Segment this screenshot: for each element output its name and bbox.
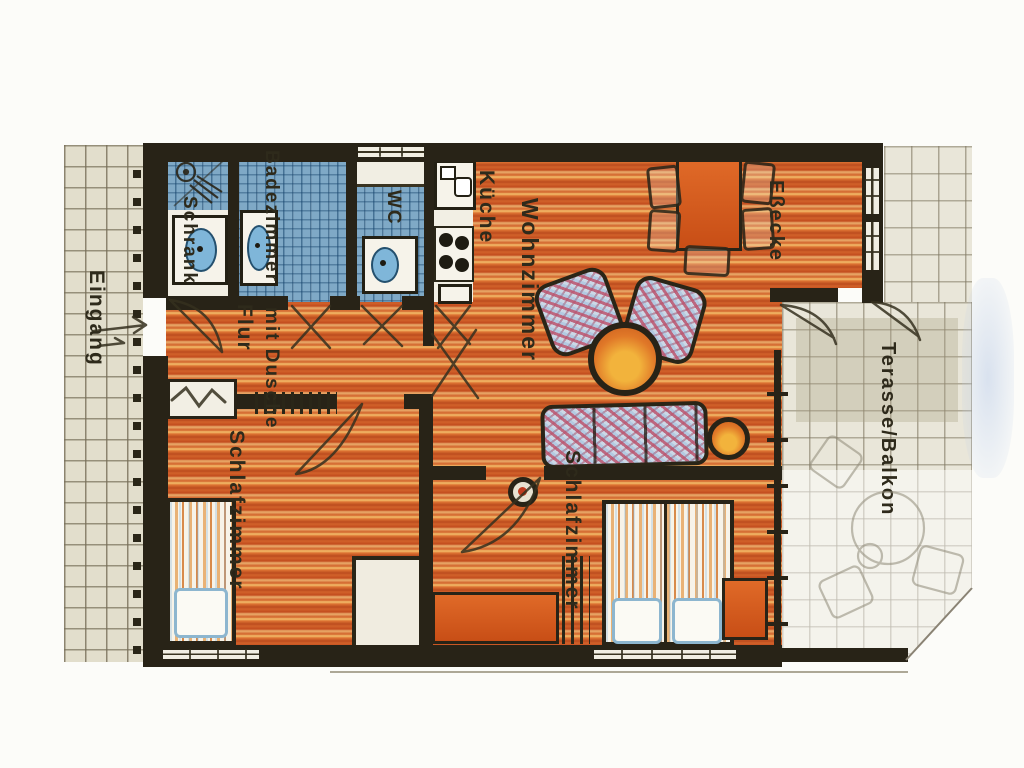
- wall-dining-south-stub: [874, 288, 883, 302]
- entrance-walkway-tiles: [64, 145, 143, 662]
- burner-icon: [455, 236, 469, 250]
- room-label-schlafzimmer-rechts: Schlafzimmer: [562, 450, 583, 650]
- room-label-wc: WC: [384, 190, 403, 234]
- kitchen-cabinet: [438, 284, 472, 304]
- room-label-badezimmer-line1: Badezimmer: [261, 150, 282, 283]
- terrace-upper-tiles: [884, 146, 972, 302]
- room-label-badezimmer: Badezimmermit Dusche: [262, 150, 281, 318]
- wood-floor-dining: [782, 158, 866, 288]
- wall-living-bedroom-a: [430, 466, 486, 480]
- wall-bath-wc: [346, 156, 357, 302]
- wall-west-upper: [143, 143, 168, 298]
- bed-divider-line: [664, 504, 667, 642]
- dresser-white: [352, 556, 424, 650]
- kitchen-sink: [434, 160, 476, 210]
- ground-line: [330, 671, 908, 673]
- dining-chair: [647, 209, 682, 253]
- walkway-wall-ticks: [133, 150, 141, 655]
- wardrobe: [167, 379, 237, 419]
- room-label-flur: Flur: [234, 304, 255, 370]
- kitchen-stove: [434, 226, 474, 282]
- room-label-eingang: Eingang: [86, 270, 107, 400]
- wall-hall-living-stub: [423, 296, 434, 346]
- pillow: [174, 588, 228, 638]
- pillow: [672, 598, 722, 644]
- room-label-schrank: Schrank: [180, 196, 199, 314]
- wall-wc-kitchen: [424, 156, 434, 302]
- wall-terrace-south: [782, 648, 908, 662]
- side-table: [707, 417, 750, 460]
- toilet-bowl-icon: [371, 247, 399, 283]
- burner-icon: [439, 255, 453, 269]
- window-dining-east-1: [866, 168, 879, 214]
- burner-icon: [439, 233, 453, 247]
- window-wall-ticks: [767, 350, 788, 660]
- wall-north: [143, 143, 883, 162]
- dining-table: [676, 156, 742, 251]
- room-label-wohnzimmer: Wohnzimmer: [518, 198, 541, 443]
- wall-closet-bath: [228, 156, 239, 302]
- floor-plan-scan: Eingang Schrank Badezimmermit Dusche WC …: [0, 0, 1024, 768]
- room-label-essecke: Eßecke: [766, 180, 786, 285]
- wall-bedroom-divider: [419, 394, 433, 660]
- sink-bowl-icon: [454, 177, 472, 197]
- window-dining-east-2: [866, 222, 879, 270]
- wall-dining-south: [770, 288, 838, 302]
- room-label-badezimmer-line2: mit Dusche: [261, 283, 282, 429]
- sink-drainer-icon: [440, 166, 456, 180]
- sideboard: [432, 592, 559, 644]
- room-label-schlafzimmer-links: Schlafzimmer: [226, 430, 247, 635]
- room-label-terrasse: Terasse/Balkon: [878, 342, 898, 557]
- door-knob-sketch: [508, 477, 538, 507]
- dresser-orange: [722, 578, 768, 640]
- wall-bath-south-b: [330, 296, 360, 310]
- wc-toilet: [362, 236, 418, 294]
- dining-chair: [646, 164, 682, 209]
- room-label-kueche: Küche: [476, 170, 497, 305]
- burner-icon: [455, 258, 469, 272]
- dining-chair: [683, 245, 731, 277]
- wc-cistern-shelf: [355, 160, 425, 187]
- wall-west-lower: [143, 356, 168, 667]
- bed-double: [602, 500, 734, 646]
- window-south-left: [163, 650, 259, 659]
- window-south-right: [594, 650, 736, 659]
- coffee-table: [588, 322, 662, 396]
- pillow: [612, 598, 662, 644]
- window-north: [358, 147, 424, 157]
- scan-blue-shadow: [962, 278, 1014, 478]
